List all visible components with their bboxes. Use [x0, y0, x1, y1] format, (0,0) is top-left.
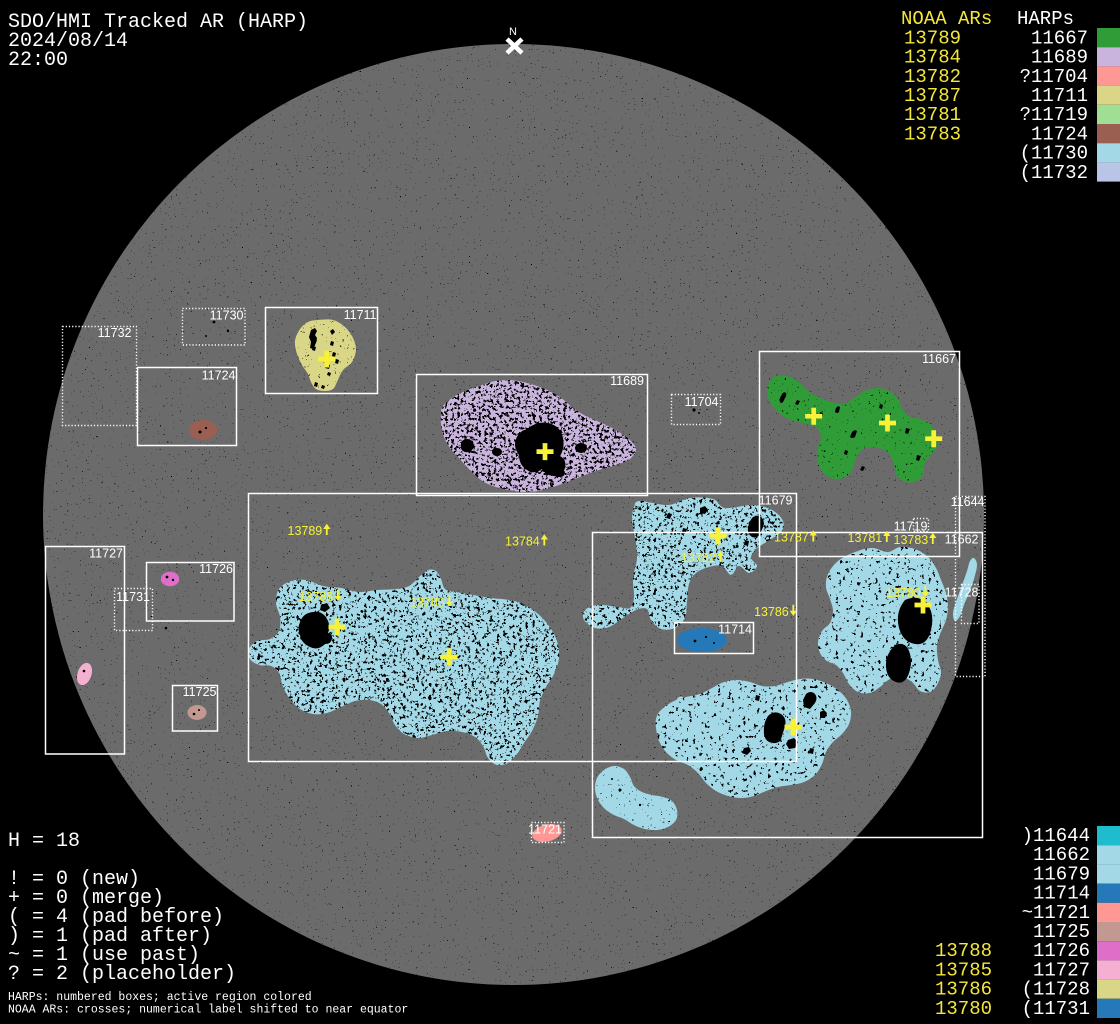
svg-text:13783: 13783	[904, 123, 961, 145]
svg-text:NOAA ARs: crosses; numerical l: NOAA ARs: crosses; numerical label shift…	[8, 1004, 408, 1017]
svg-text:13782: 13782	[681, 551, 716, 565]
svg-text:? = 2 (placeholder): ? = 2 (placeholder)	[8, 963, 236, 986]
svg-text:11728: 11728	[945, 586, 979, 600]
svg-text:11644: 11644	[951, 495, 985, 509]
svg-text:11726: 11726	[199, 562, 233, 576]
svg-text:11662: 11662	[945, 533, 979, 547]
svg-text:11704: 11704	[685, 395, 719, 409]
svg-text:11724: 11724	[202, 369, 236, 383]
svg-text:11667: 11667	[922, 352, 956, 366]
svg-text:11730: 11730	[210, 309, 244, 323]
svg-text:(11732: (11732	[1020, 162, 1088, 184]
svg-text:11714: 11714	[718, 623, 752, 637]
svg-text:22:00: 22:00	[8, 49, 68, 72]
svg-text:(11731: (11731	[1022, 998, 1090, 1020]
svg-text:11732: 11732	[98, 326, 132, 340]
svg-text:13785: 13785	[410, 596, 445, 610]
svg-text:13780: 13780	[886, 586, 921, 600]
svg-text:H = 18: H = 18	[8, 830, 80, 853]
svg-text:11711: 11711	[344, 308, 377, 322]
svg-text:13783: 13783	[894, 533, 929, 547]
svg-text:13786: 13786	[754, 605, 789, 619]
svg-text:13780: 13780	[935, 998, 992, 1020]
svg-text:11731: 11731	[116, 590, 150, 604]
svg-text:13787: 13787	[774, 531, 809, 545]
svg-text:11727: 11727	[89, 547, 123, 561]
svg-text:HARPs: numbered boxes; active: HARPs: numbered boxes; active region col…	[8, 991, 312, 1004]
svg-text:11679: 11679	[759, 494, 793, 508]
svg-text:11721: 11721	[528, 823, 562, 837]
svg-text:13784: 13784	[505, 535, 540, 549]
svg-text:11719: 11719	[894, 520, 928, 534]
svg-text:11689: 11689	[610, 374, 644, 388]
svg-text:N: N	[509, 26, 517, 38]
svg-text:11725: 11725	[183, 685, 217, 699]
svg-text:13789: 13789	[288, 524, 323, 538]
svg-text:13788: 13788	[299, 590, 334, 604]
svg-text:13781: 13781	[848, 531, 883, 545]
